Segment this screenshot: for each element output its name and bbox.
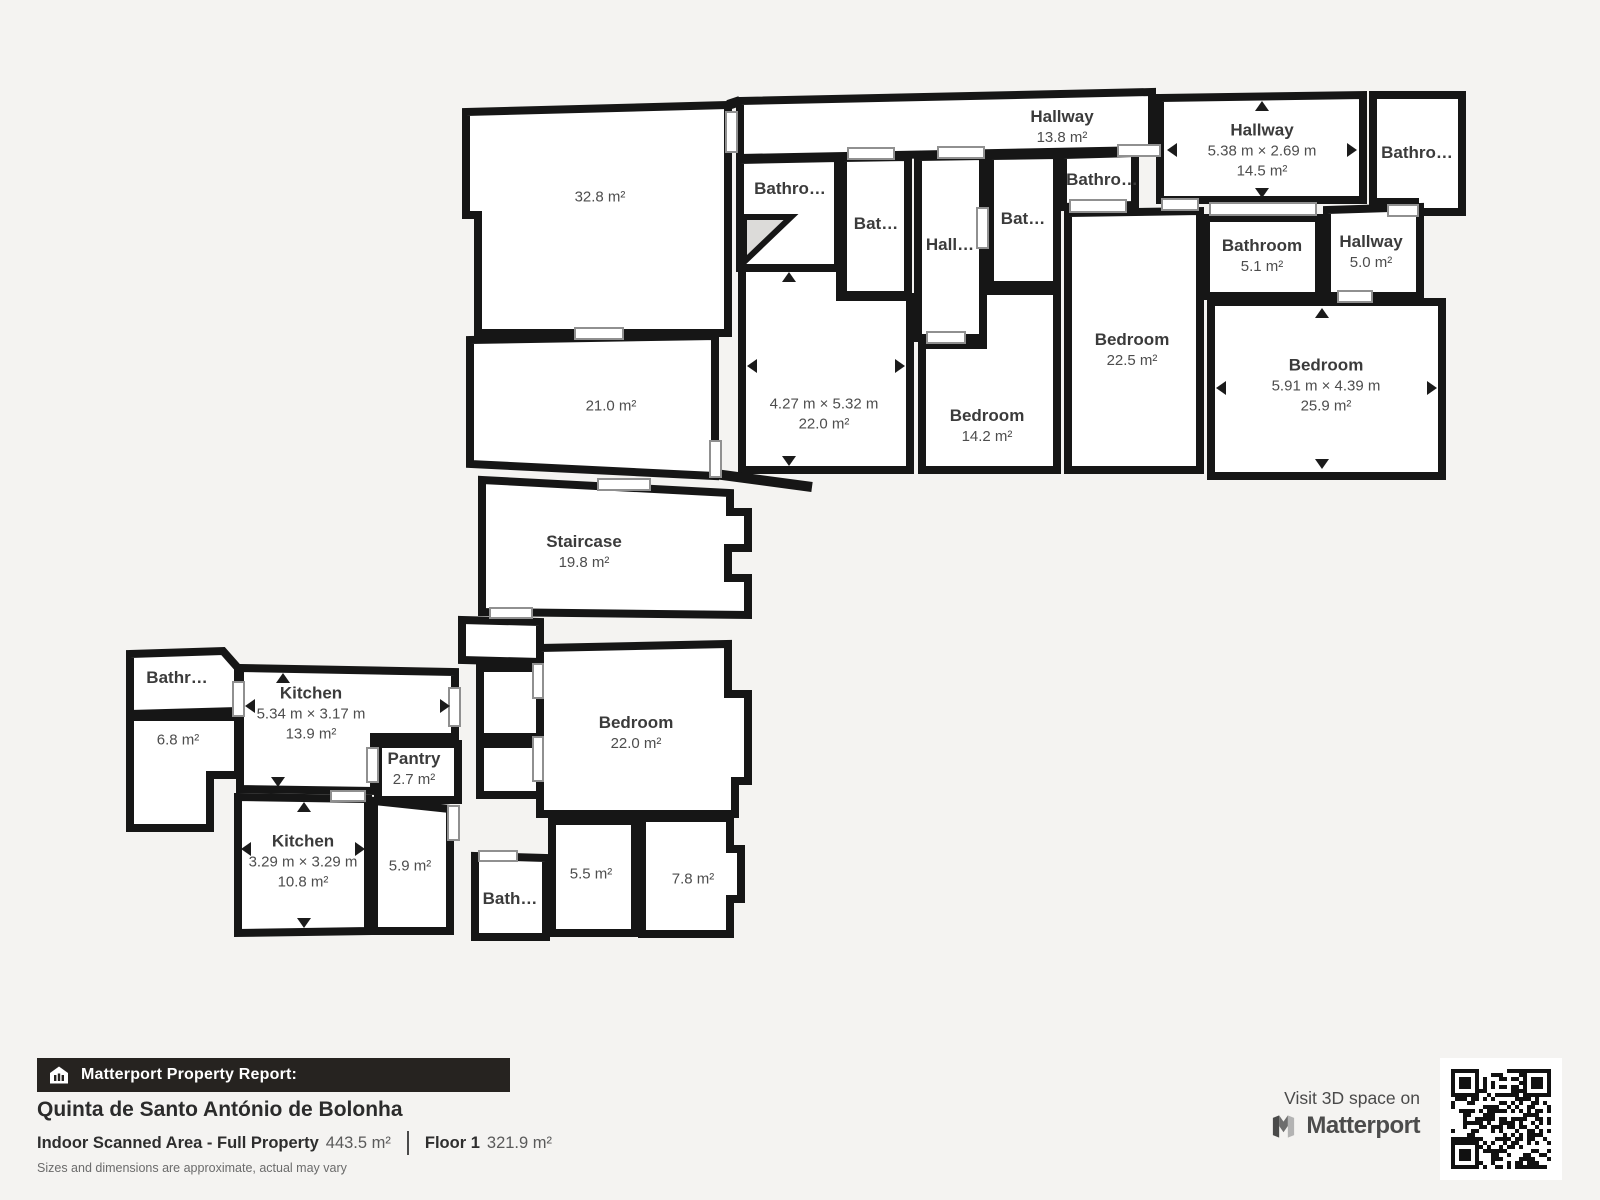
- room-label-room-68: 6.8 m²: [157, 730, 200, 750]
- room-label-pantry: Pantry2.7 m²: [388, 748, 441, 790]
- room-label-hallway-50: Hallway5.0 m²: [1339, 231, 1402, 273]
- area-stats: Indoor Scanned Area - Full Property 443.…: [37, 1131, 552, 1155]
- matterport-logo-icon: [1270, 1113, 1297, 1140]
- room-shape-vestibule-b: [480, 668, 540, 737]
- stats-divider: [407, 1131, 409, 1155]
- room-shape-room-328: [466, 105, 728, 333]
- room-label-bedroom-225: Bedroom22.5 m²: [1095, 329, 1170, 371]
- walls: [130, 92, 1462, 937]
- room-label-room-210: 21.0 m²: [586, 396, 637, 416]
- room-label-room-328: 32.8 m²: [575, 187, 626, 207]
- room-label-staircase: Staircase19.8 m²: [546, 531, 622, 573]
- room-label-bathroom-b: Bat…: [854, 213, 898, 235]
- room-label-hallway-main: Hallway5.38 m × 2.69 m14.5 m²: [1208, 119, 1317, 180]
- room-label-room-59: 5.9 m²: [389, 856, 432, 876]
- scanned-area-value: 443.5 m²: [326, 1134, 391, 1153]
- report-bar-label: Matterport Property Report:: [81, 1066, 297, 1084]
- room-label-bathroom-d: Bathro…: [1066, 169, 1138, 191]
- floor-label: Floor 1: [425, 1134, 480, 1153]
- room-label-kitchen-108: Kitchen3.29 m × 3.29 m10.8 m²: [249, 830, 358, 891]
- visit-3d-text: Visit 3D space on: [1140, 1088, 1420, 1109]
- room-label-room-220a: 4.27 m × 5.32 m22.0 m²: [770, 395, 879, 434]
- matterport-floorplan-report: { "colors": { "background": "#f4f3f1", "…: [0, 0, 1600, 1200]
- room-label-bedroom-220b: Bedroom22.0 m²: [599, 712, 674, 754]
- room-shape-vestibule-c: [480, 744, 540, 795]
- room-label-bathroom-left: Bathr…: [146, 667, 207, 689]
- room-label-bathroom-51: Bathroom5.1 m²: [1222, 235, 1302, 277]
- room-label-bathroom-c: Bat…: [1001, 208, 1045, 230]
- matterport-brand: Matterport: [1140, 1112, 1420, 1140]
- room-label-bathroom-a: Bathro…: [754, 178, 826, 200]
- room-label-room-55: 5.5 m²: [570, 864, 613, 884]
- scanned-area-label: Indoor Scanned Area - Full Property: [37, 1134, 319, 1153]
- room-label-hall-small: Hall…: [926, 234, 974, 256]
- room-label-bedroom-259: Bedroom5.91 m × 4.39 m25.9 m²: [1272, 354, 1381, 415]
- floor-value: 321.9 m²: [487, 1134, 552, 1153]
- room-label-bedroom-142: Bedroom14.2 m²: [950, 405, 1025, 447]
- room-label-room-78: 7.8 m²: [672, 869, 715, 889]
- room-label-bathroom-small: Bath…: [483, 888, 538, 910]
- room-shape-room-220a: [742, 268, 910, 470]
- room-label-hallway-top: Hallway13.8 m²: [1030, 106, 1093, 148]
- qr-code-pattern: [1451, 1069, 1551, 1169]
- matterport-wordmark: Matterport: [1306, 1112, 1420, 1140]
- disclaimer-text: Sizes and dimensions are approximate, ac…: [37, 1161, 347, 1175]
- matterport-house-icon: [49, 1066, 69, 1084]
- qr-code: [1440, 1058, 1562, 1180]
- room-label-kitchen-139: Kitchen5.34 m × 3.17 m13.9 m²: [257, 682, 366, 743]
- room-label-bathroom-far: Bathro…: [1381, 142, 1453, 164]
- report-header-bar: Matterport Property Report:: [37, 1058, 510, 1092]
- room-shape-vestibule-a: [462, 620, 540, 662]
- property-name: Quinta de Santo António de Bolonha: [37, 1098, 403, 1122]
